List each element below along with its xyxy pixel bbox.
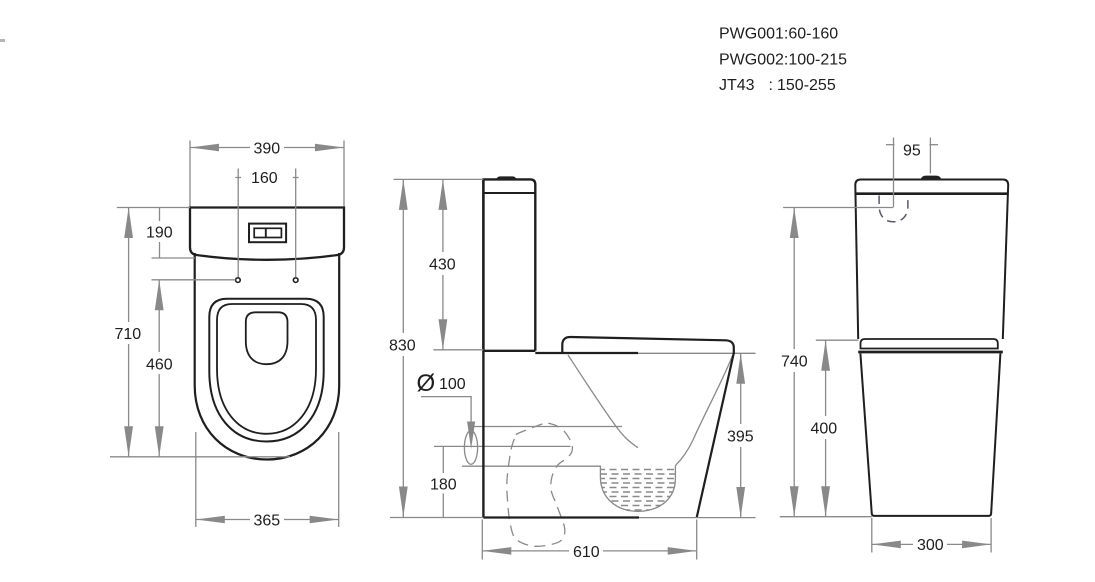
svg-text:430: 430 [429,257,456,274]
svg-text:180: 180 [430,477,457,494]
svg-text:300: 300 [917,537,944,554]
svg-text:95: 95 [903,143,921,160]
svg-text:400: 400 [811,421,838,438]
svg-text:395: 395 [727,429,754,446]
svg-text:610: 610 [573,544,600,561]
svg-text:JT43: JT43 [719,77,755,94]
svg-text:710: 710 [115,326,142,343]
svg-text:Ø: Ø [417,370,436,397]
svg-text:460: 460 [146,357,173,374]
svg-text:190: 190 [146,225,173,242]
svg-text::: : [769,77,773,94]
svg-text:365: 365 [254,513,281,530]
svg-text:PWG001:60-160: PWG001:60-160 [719,26,838,43]
svg-text:740: 740 [781,354,808,371]
svg-text:150-255: 150-255 [777,77,836,94]
svg-text:390: 390 [254,141,281,158]
svg-text:160: 160 [251,170,278,187]
svg-text:100: 100 [439,376,466,393]
svg-text:PWG002:100-215: PWG002:100-215 [719,52,847,69]
svg-text:830: 830 [389,338,416,355]
